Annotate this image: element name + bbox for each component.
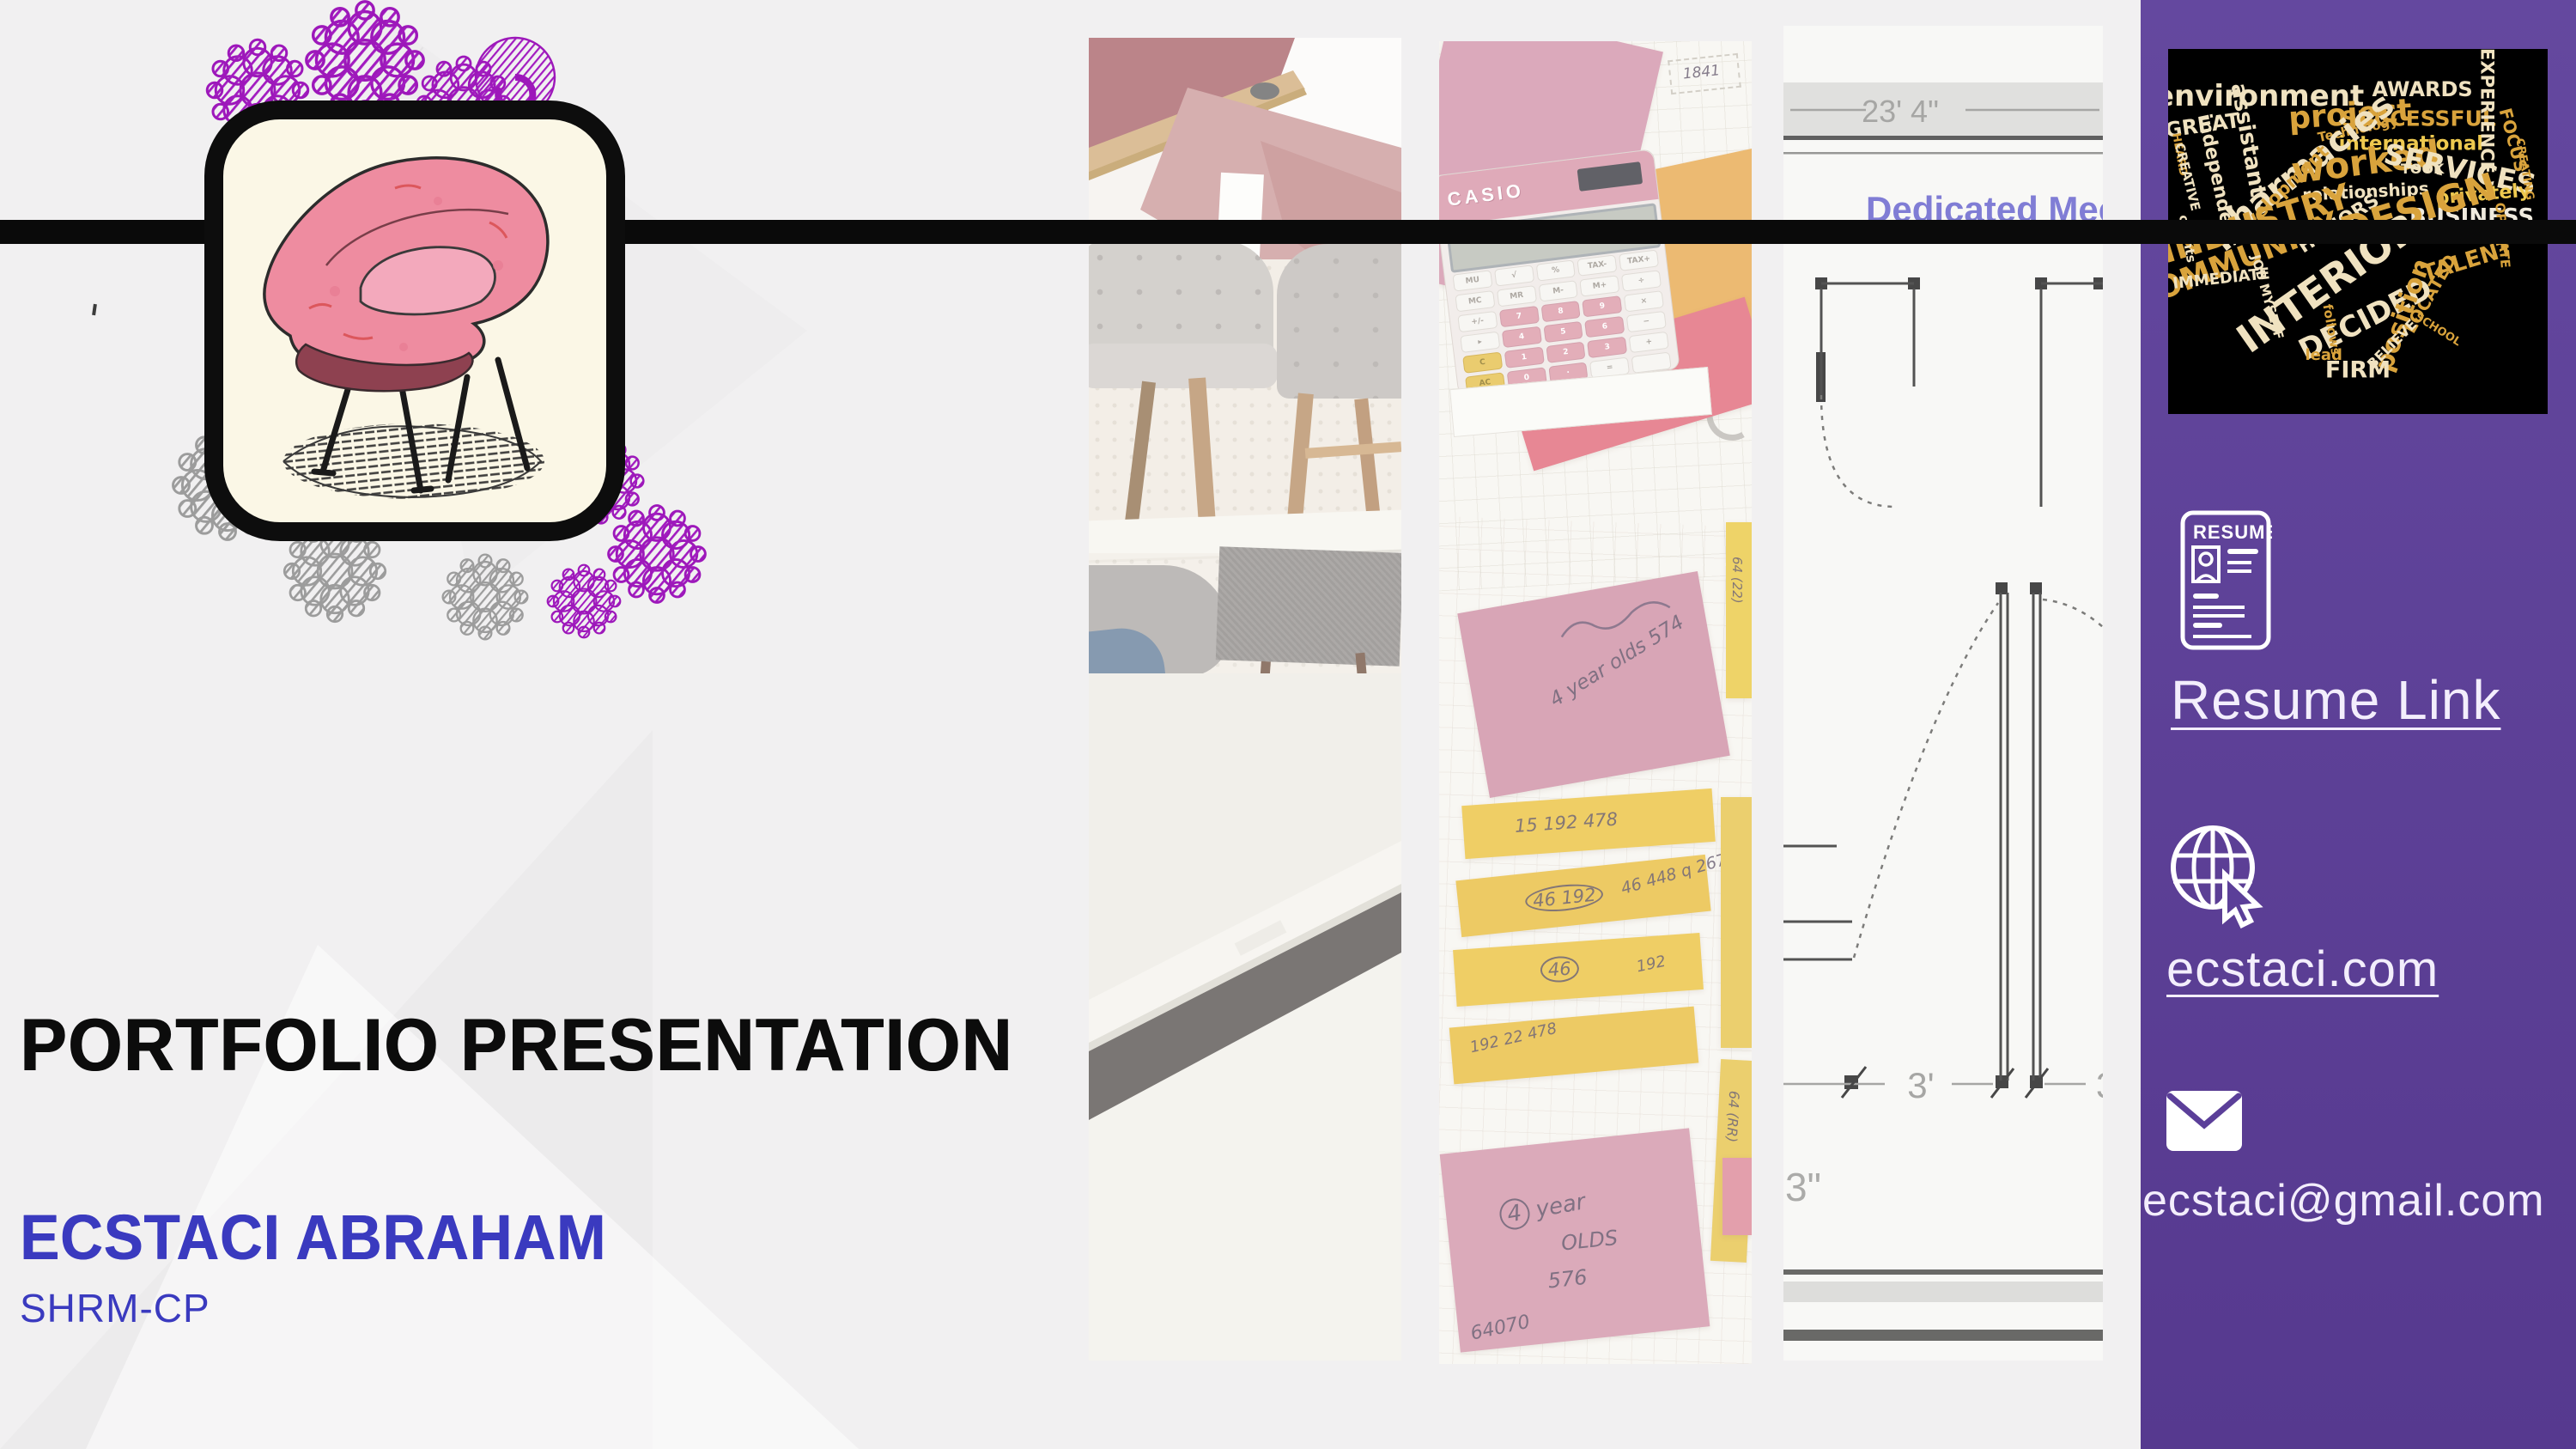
calculator-key: C	[1462, 352, 1503, 374]
pink-sticky-corner	[1722, 1158, 1752, 1235]
calculator-key: ▸	[1460, 332, 1500, 353]
textured-ottoman	[1216, 546, 1401, 666]
pink-sticky-note: 4 year OLDS 576 64070	[1440, 1128, 1710, 1352]
floorplan-dim-door: 3'	[1907, 1065, 1934, 1105]
calculator-key: M+	[1580, 275, 1620, 296]
slide-canvas: 1841 20 192 CASIO MU√%TAX-TAX+MCMRM-M+÷+…	[0, 0, 2576, 1449]
floorplan-dim-top: 23' 4"	[1862, 94, 1939, 129]
globe-cursor-icon	[2168, 823, 2275, 930]
floorplan-dim-right: 3	[2096, 1065, 2103, 1105]
resume-icon: RESUME	[2179, 509, 2272, 651]
calculator-key: ÷	[1621, 270, 1662, 291]
calculator-key: 8	[1540, 301, 1581, 322]
gray-chair	[1277, 244, 1401, 399]
calculator-key: 7	[1499, 306, 1540, 327]
calculator-key: 4	[1502, 326, 1542, 348]
calculator-key: 1	[1504, 347, 1545, 368]
calculator-key: MU	[1452, 270, 1492, 291]
wordcloud-word: FIRM	[2325, 359, 2391, 382]
calculator-key: TAX-	[1577, 254, 1618, 276]
contact-sidebar: environmentprojectAWARDSSUCCESSFULintern…	[2141, 0, 2576, 1449]
author-name: ECSTACI ABRAHAM	[20, 1201, 606, 1274]
page-title: PORTFOLIO PRESENTATION	[20, 1003, 1013, 1088]
calculator-key: √	[1494, 265, 1534, 286]
website-link[interactable]: ecstaci.com	[2166, 941, 2439, 998]
calculator-key: −	[1626, 311, 1667, 332]
calculator-key: +/-	[1457, 311, 1498, 332]
yellow-sticky-corner: 64 (22)	[1726, 522, 1752, 698]
yellow-sticky-corner	[1721, 797, 1752, 1048]
calculator-key: 3	[1587, 337, 1627, 358]
calculator-key: MR	[1497, 285, 1537, 307]
calculator-key: 5	[1543, 321, 1583, 343]
casio-calculator: CASIO MU√%TAX-TAX+MCMRM-M+÷+/-789×▸456−C…	[1439, 149, 1680, 396]
wordcloud-word: EXPERIENCE	[2478, 49, 2496, 174]
calculator-key: 6	[1585, 316, 1625, 338]
calculator-key: MC	[1455, 290, 1495, 312]
paper-note-box: 1841	[1668, 53, 1741, 94]
calculator-key: 2	[1546, 342, 1586, 363]
calculator-key: M-	[1538, 280, 1578, 301]
calculator-key: 9	[1583, 295, 1623, 317]
stray-mark	[92, 304, 97, 315]
calculator-key: TAX+	[1619, 249, 1659, 271]
resume-link[interactable]: Resume Link	[2171, 668, 2501, 732]
author-credential: SHRM-CP	[20, 1285, 210, 1331]
calculator-key: ×	[1624, 290, 1664, 312]
wordcloud-word: AWARDS	[2372, 79, 2473, 100]
calculator-key: %	[1535, 259, 1576, 281]
chair-sketch-frame	[204, 100, 625, 541]
pink-chair-sketch	[223, 119, 606, 522]
calculator-key: +	[1629, 332, 1669, 353]
floorplan-dim-wall: 3"	[1785, 1165, 1821, 1209]
email-envelope-icon	[2166, 1091, 2242, 1151]
email-address[interactable]: ecstaci@gmail.com	[2142, 1175, 2545, 1227]
svg-text:RESUME: RESUME	[2193, 521, 2272, 543]
